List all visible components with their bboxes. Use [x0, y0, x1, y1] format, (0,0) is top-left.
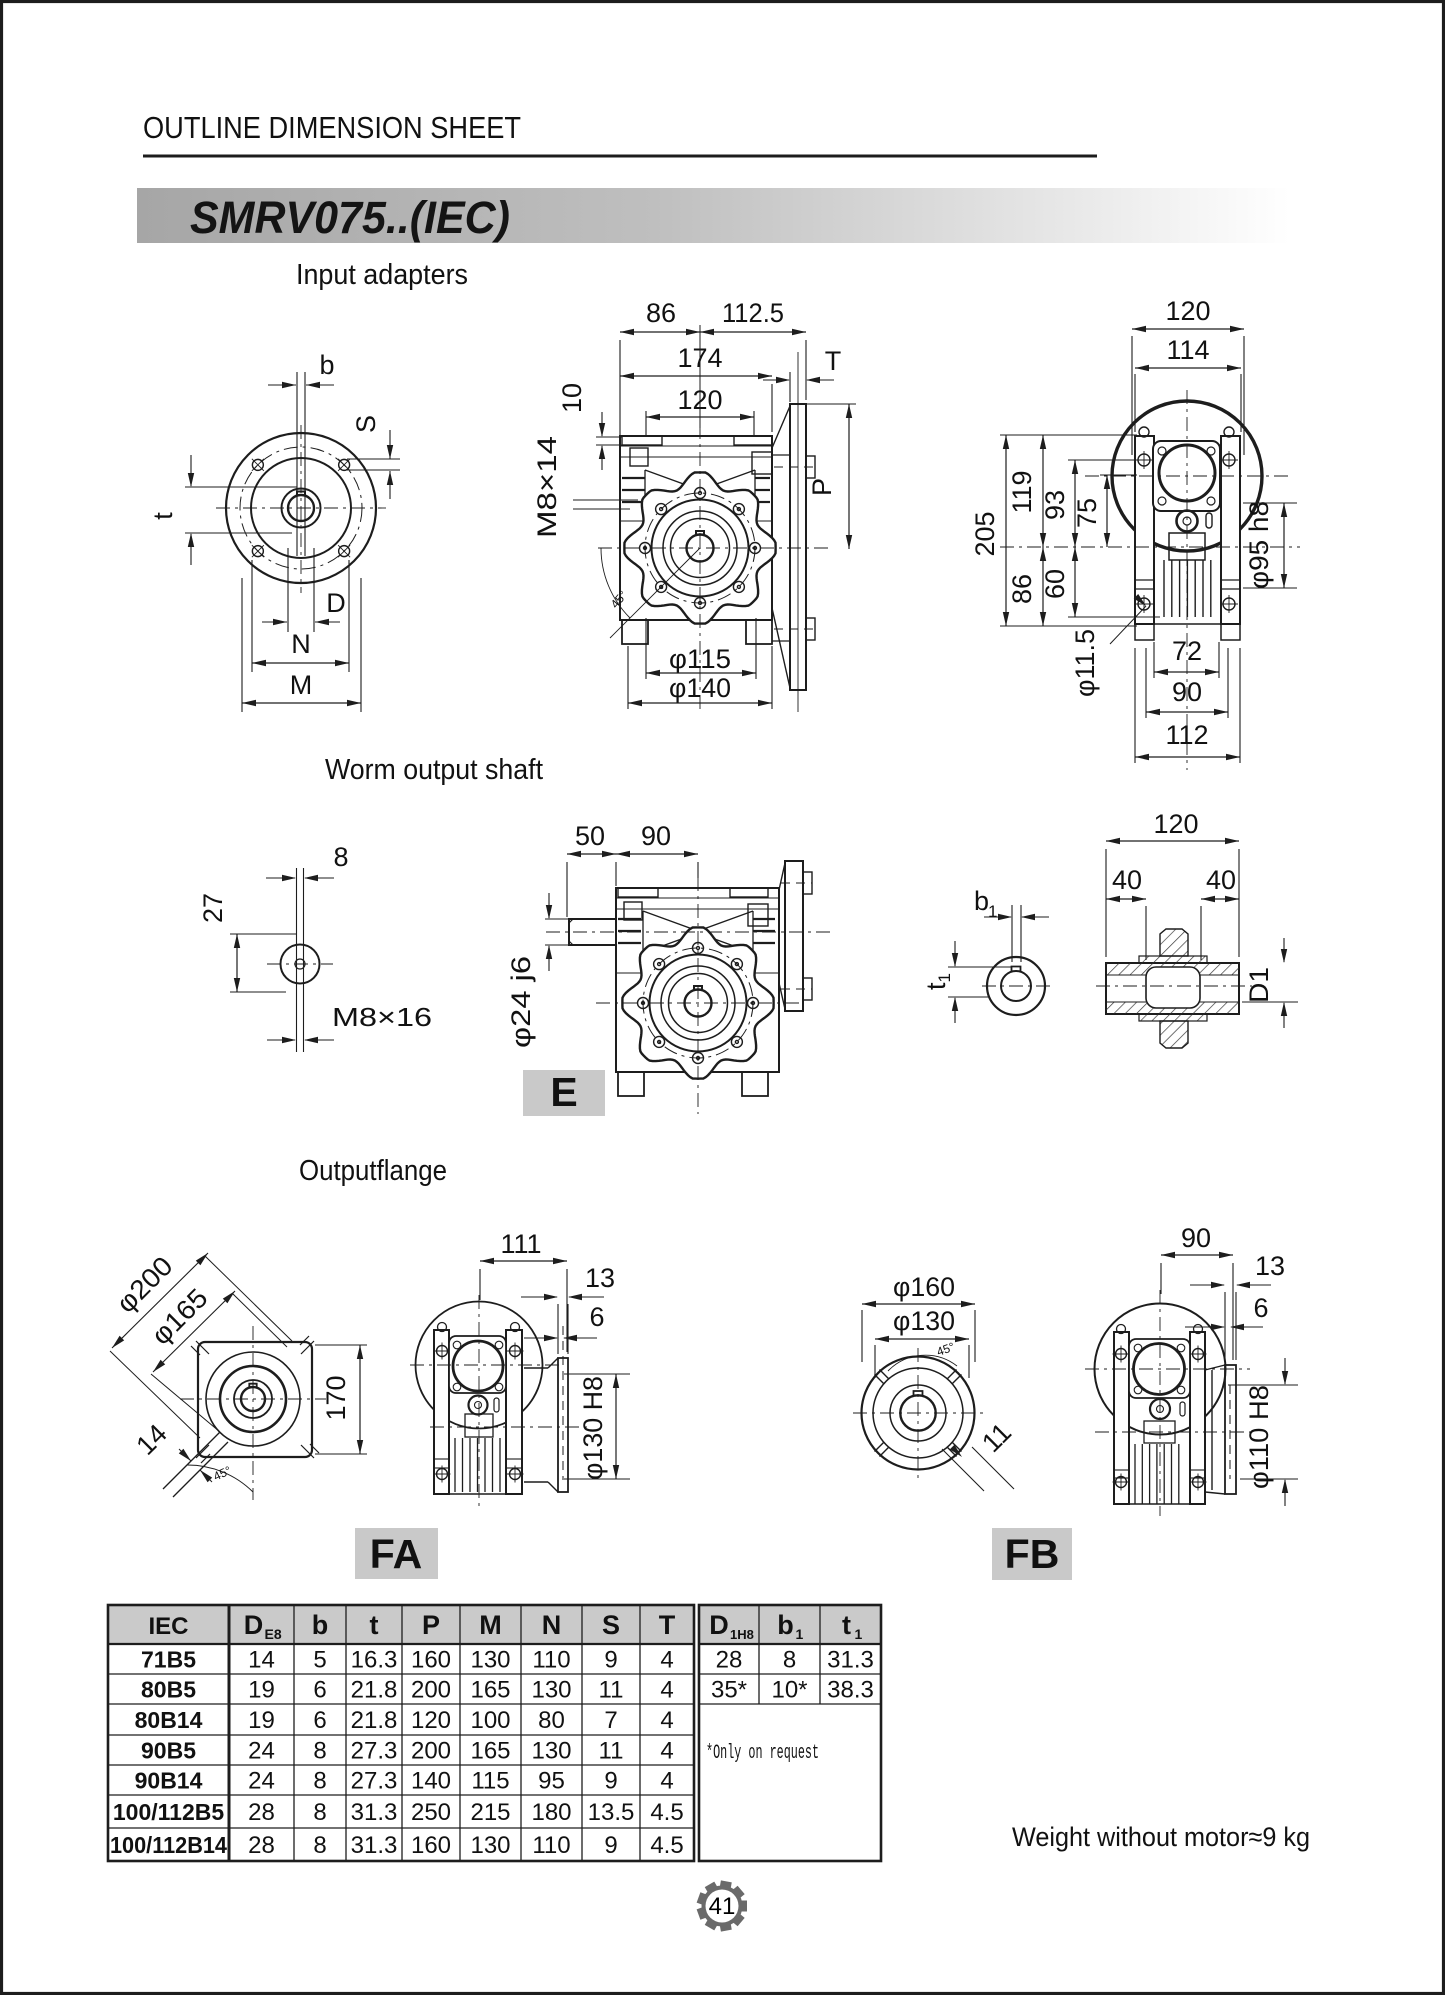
- svg-text:D1: D1: [1244, 967, 1274, 1003]
- svg-text:1: 1: [796, 1626, 804, 1642]
- svg-text:95: 95: [538, 1768, 565, 1795]
- svg-text:120: 120: [1165, 296, 1210, 326]
- svg-text:b: b: [777, 1610, 794, 1640]
- svg-text:4: 4: [660, 1647, 673, 1674]
- svg-text:t: t: [842, 1610, 851, 1640]
- svg-text:111: 111: [500, 1229, 541, 1259]
- svg-text:80B14: 80B14: [135, 1707, 203, 1733]
- svg-text:φ130: φ130: [893, 1306, 955, 1336]
- svg-text:10: 10: [557, 383, 587, 413]
- svg-text:112: 112: [1165, 720, 1208, 750]
- svg-text:M: M: [479, 1610, 502, 1640]
- svg-text:9: 9: [604, 1832, 617, 1859]
- svg-text:28: 28: [248, 1832, 275, 1859]
- svg-text:IEC: IEC: [148, 1613, 188, 1640]
- svg-text:5: 5: [313, 1647, 326, 1674]
- svg-text:D: D: [709, 1610, 729, 1640]
- svg-text:90: 90: [641, 821, 671, 851]
- svg-text:50: 50: [575, 821, 605, 851]
- svg-text:10*: 10*: [771, 1677, 807, 1704]
- svg-text:21.8: 21.8: [351, 1707, 398, 1734]
- svg-text:90: 90: [1181, 1223, 1211, 1253]
- svg-text:215: 215: [470, 1799, 510, 1826]
- svg-text:7: 7: [604, 1707, 617, 1734]
- svg-text:112.5: 112.5: [722, 298, 784, 328]
- svg-text:93: 93: [1040, 490, 1070, 520]
- svg-text:27: 27: [198, 893, 228, 923]
- svg-text:1: 1: [855, 1626, 863, 1642]
- svg-text:T: T: [659, 1610, 676, 1640]
- svg-text:E: E: [550, 1069, 577, 1115]
- svg-text:6: 6: [313, 1677, 326, 1704]
- svg-text:M8×14: M8×14: [532, 436, 562, 538]
- svg-text:90B14: 90B14: [135, 1768, 203, 1794]
- svg-text:S: S: [351, 415, 381, 433]
- svg-text:24: 24: [248, 1738, 275, 1765]
- svg-text:13.5: 13.5: [588, 1799, 635, 1826]
- svg-text:P: P: [422, 1610, 440, 1640]
- svg-text:100/112B14: 100/112B14: [110, 1832, 227, 1858]
- svg-text:120: 120: [411, 1707, 451, 1734]
- svg-text:31.3: 31.3: [827, 1647, 874, 1674]
- svg-text:Weight without motor≈9 kg: Weight without motor≈9 kg: [1012, 1822, 1310, 1852]
- svg-text:24: 24: [248, 1768, 275, 1795]
- svg-text:90B5: 90B5: [141, 1738, 196, 1764]
- svg-text:165: 165: [470, 1677, 510, 1704]
- svg-text:16.3: 16.3: [351, 1647, 398, 1674]
- svg-text:160: 160: [411, 1647, 451, 1674]
- svg-text:1: 1: [988, 902, 997, 921]
- svg-text:φ130 H8: φ130 H8: [578, 1376, 608, 1480]
- svg-text:130: 130: [531, 1677, 571, 1704]
- svg-text:115: 115: [471, 1768, 509, 1795]
- svg-text:φ110 H8: φ110 H8: [1244, 1385, 1274, 1489]
- svg-text:250: 250: [411, 1799, 451, 1826]
- svg-text:P: P: [807, 478, 837, 496]
- svg-text:28: 28: [716, 1647, 743, 1674]
- svg-text:170: 170: [321, 1375, 351, 1420]
- svg-text:φ24 j6: φ24 j6: [506, 956, 536, 1048]
- svg-text:180: 180: [531, 1799, 571, 1826]
- svg-text:200: 200: [411, 1677, 451, 1704]
- svg-text:14: 14: [248, 1647, 275, 1674]
- svg-text:φ11.5: φ11.5: [1070, 629, 1100, 697]
- svg-text:4: 4: [660, 1707, 673, 1734]
- svg-text:D: D: [326, 588, 346, 618]
- svg-text:13: 13: [1255, 1251, 1285, 1281]
- svg-text:19: 19: [248, 1677, 275, 1704]
- svg-text:71B5: 71B5: [141, 1647, 196, 1673]
- svg-text:28: 28: [248, 1799, 275, 1826]
- svg-text:4.5: 4.5: [650, 1832, 683, 1859]
- svg-text:*Only on request: *Only on request: [706, 1742, 819, 1765]
- svg-text:27.3: 27.3: [351, 1768, 398, 1795]
- svg-text:M8×16: M8×16: [332, 1002, 432, 1032]
- svg-text:31.3: 31.3: [351, 1832, 398, 1859]
- svg-text:130: 130: [470, 1647, 510, 1674]
- svg-text:6: 6: [313, 1707, 326, 1734]
- svg-text:FA: FA: [370, 1531, 422, 1577]
- svg-text:Input adapters: Input adapters: [296, 259, 468, 291]
- svg-text:21.8: 21.8: [351, 1677, 398, 1704]
- svg-text:31.3: 31.3: [351, 1799, 398, 1826]
- svg-text:8: 8: [313, 1832, 326, 1859]
- svg-text:114: 114: [1166, 335, 1209, 365]
- svg-text:8: 8: [313, 1768, 326, 1795]
- svg-text:φ95 h8: φ95 h8: [1244, 501, 1274, 589]
- svg-text:S: S: [602, 1610, 620, 1640]
- svg-text:165: 165: [470, 1738, 510, 1765]
- svg-text:SMRV075..(IEC): SMRV075..(IEC): [190, 192, 510, 243]
- svg-text:8: 8: [333, 842, 348, 872]
- svg-text:8: 8: [313, 1738, 326, 1765]
- svg-text:D: D: [244, 1610, 264, 1640]
- svg-text:Outputflange: Outputflange: [299, 1155, 447, 1187]
- svg-text:4.5: 4.5: [650, 1799, 683, 1826]
- svg-text:80B5: 80B5: [141, 1677, 196, 1703]
- svg-text:9: 9: [604, 1768, 617, 1795]
- svg-text:110: 110: [532, 1832, 570, 1859]
- svg-text:86: 86: [646, 298, 676, 328]
- svg-text:38.3: 38.3: [827, 1677, 874, 1704]
- svg-text:T: T: [825, 346, 842, 376]
- svg-text:8: 8: [313, 1799, 326, 1826]
- svg-text:4: 4: [660, 1677, 673, 1704]
- svg-text:19: 19: [248, 1707, 275, 1734]
- svg-text:119: 119: [1007, 470, 1037, 513]
- svg-text:t: t: [370, 1610, 379, 1640]
- svg-text:100: 100: [470, 1707, 510, 1734]
- svg-text:205: 205: [970, 511, 1000, 556]
- svg-text:120: 120: [1153, 809, 1198, 839]
- svg-text:φ140: φ140: [669, 673, 731, 703]
- svg-text:40: 40: [1206, 865, 1236, 895]
- svg-text:b: b: [974, 886, 989, 916]
- svg-text:140: 140: [411, 1768, 451, 1795]
- svg-text:130: 130: [470, 1832, 510, 1859]
- svg-text:100/112B5: 100/112B5: [113, 1799, 224, 1825]
- svg-text:t: t: [148, 512, 178, 520]
- svg-text:27.3: 27.3: [351, 1738, 398, 1765]
- svg-text:6: 6: [589, 1302, 604, 1332]
- svg-text:13: 13: [585, 1263, 615, 1293]
- svg-text:160: 160: [411, 1832, 451, 1859]
- svg-text:130: 130: [531, 1738, 571, 1765]
- svg-text:9: 9: [604, 1647, 617, 1674]
- svg-text:200: 200: [411, 1738, 451, 1765]
- svg-text:4: 4: [660, 1738, 673, 1765]
- svg-text:1H8: 1H8: [730, 1627, 754, 1642]
- svg-text:8: 8: [783, 1647, 796, 1674]
- svg-text:75: 75: [1072, 498, 1102, 528]
- svg-text:OUTLINE DIMENSION SHEET: OUTLINE DIMENSION SHEET: [143, 110, 521, 145]
- svg-text:b: b: [312, 1610, 329, 1640]
- svg-text:120: 120: [677, 385, 722, 415]
- svg-text:90: 90: [1172, 677, 1202, 707]
- svg-text:80: 80: [538, 1707, 565, 1734]
- svg-text:E8: E8: [265, 1626, 282, 1642]
- svg-text:b: b: [319, 350, 334, 380]
- svg-text:35*: 35*: [711, 1677, 747, 1704]
- svg-text:4: 4: [660, 1768, 673, 1795]
- svg-text:41: 41: [709, 1893, 736, 1920]
- svg-text:FB: FB: [1005, 1531, 1060, 1577]
- svg-text:N: N: [291, 629, 311, 659]
- svg-text:φ160: φ160: [893, 1272, 955, 1302]
- svg-text:6: 6: [1253, 1293, 1268, 1323]
- svg-text:N: N: [542, 1610, 562, 1640]
- svg-text:72: 72: [1172, 636, 1202, 666]
- svg-text:86: 86: [1007, 574, 1037, 604]
- svg-text:Worm output shaft: Worm output shaft: [325, 754, 543, 786]
- svg-text:60: 60: [1040, 569, 1070, 599]
- svg-text:40: 40: [1112, 865, 1142, 895]
- svg-text:M: M: [290, 670, 313, 700]
- svg-text:11: 11: [599, 1738, 624, 1765]
- svg-text:φ115: φ115: [669, 644, 731, 674]
- svg-text:110: 110: [532, 1647, 570, 1674]
- svg-text:11: 11: [599, 1677, 624, 1704]
